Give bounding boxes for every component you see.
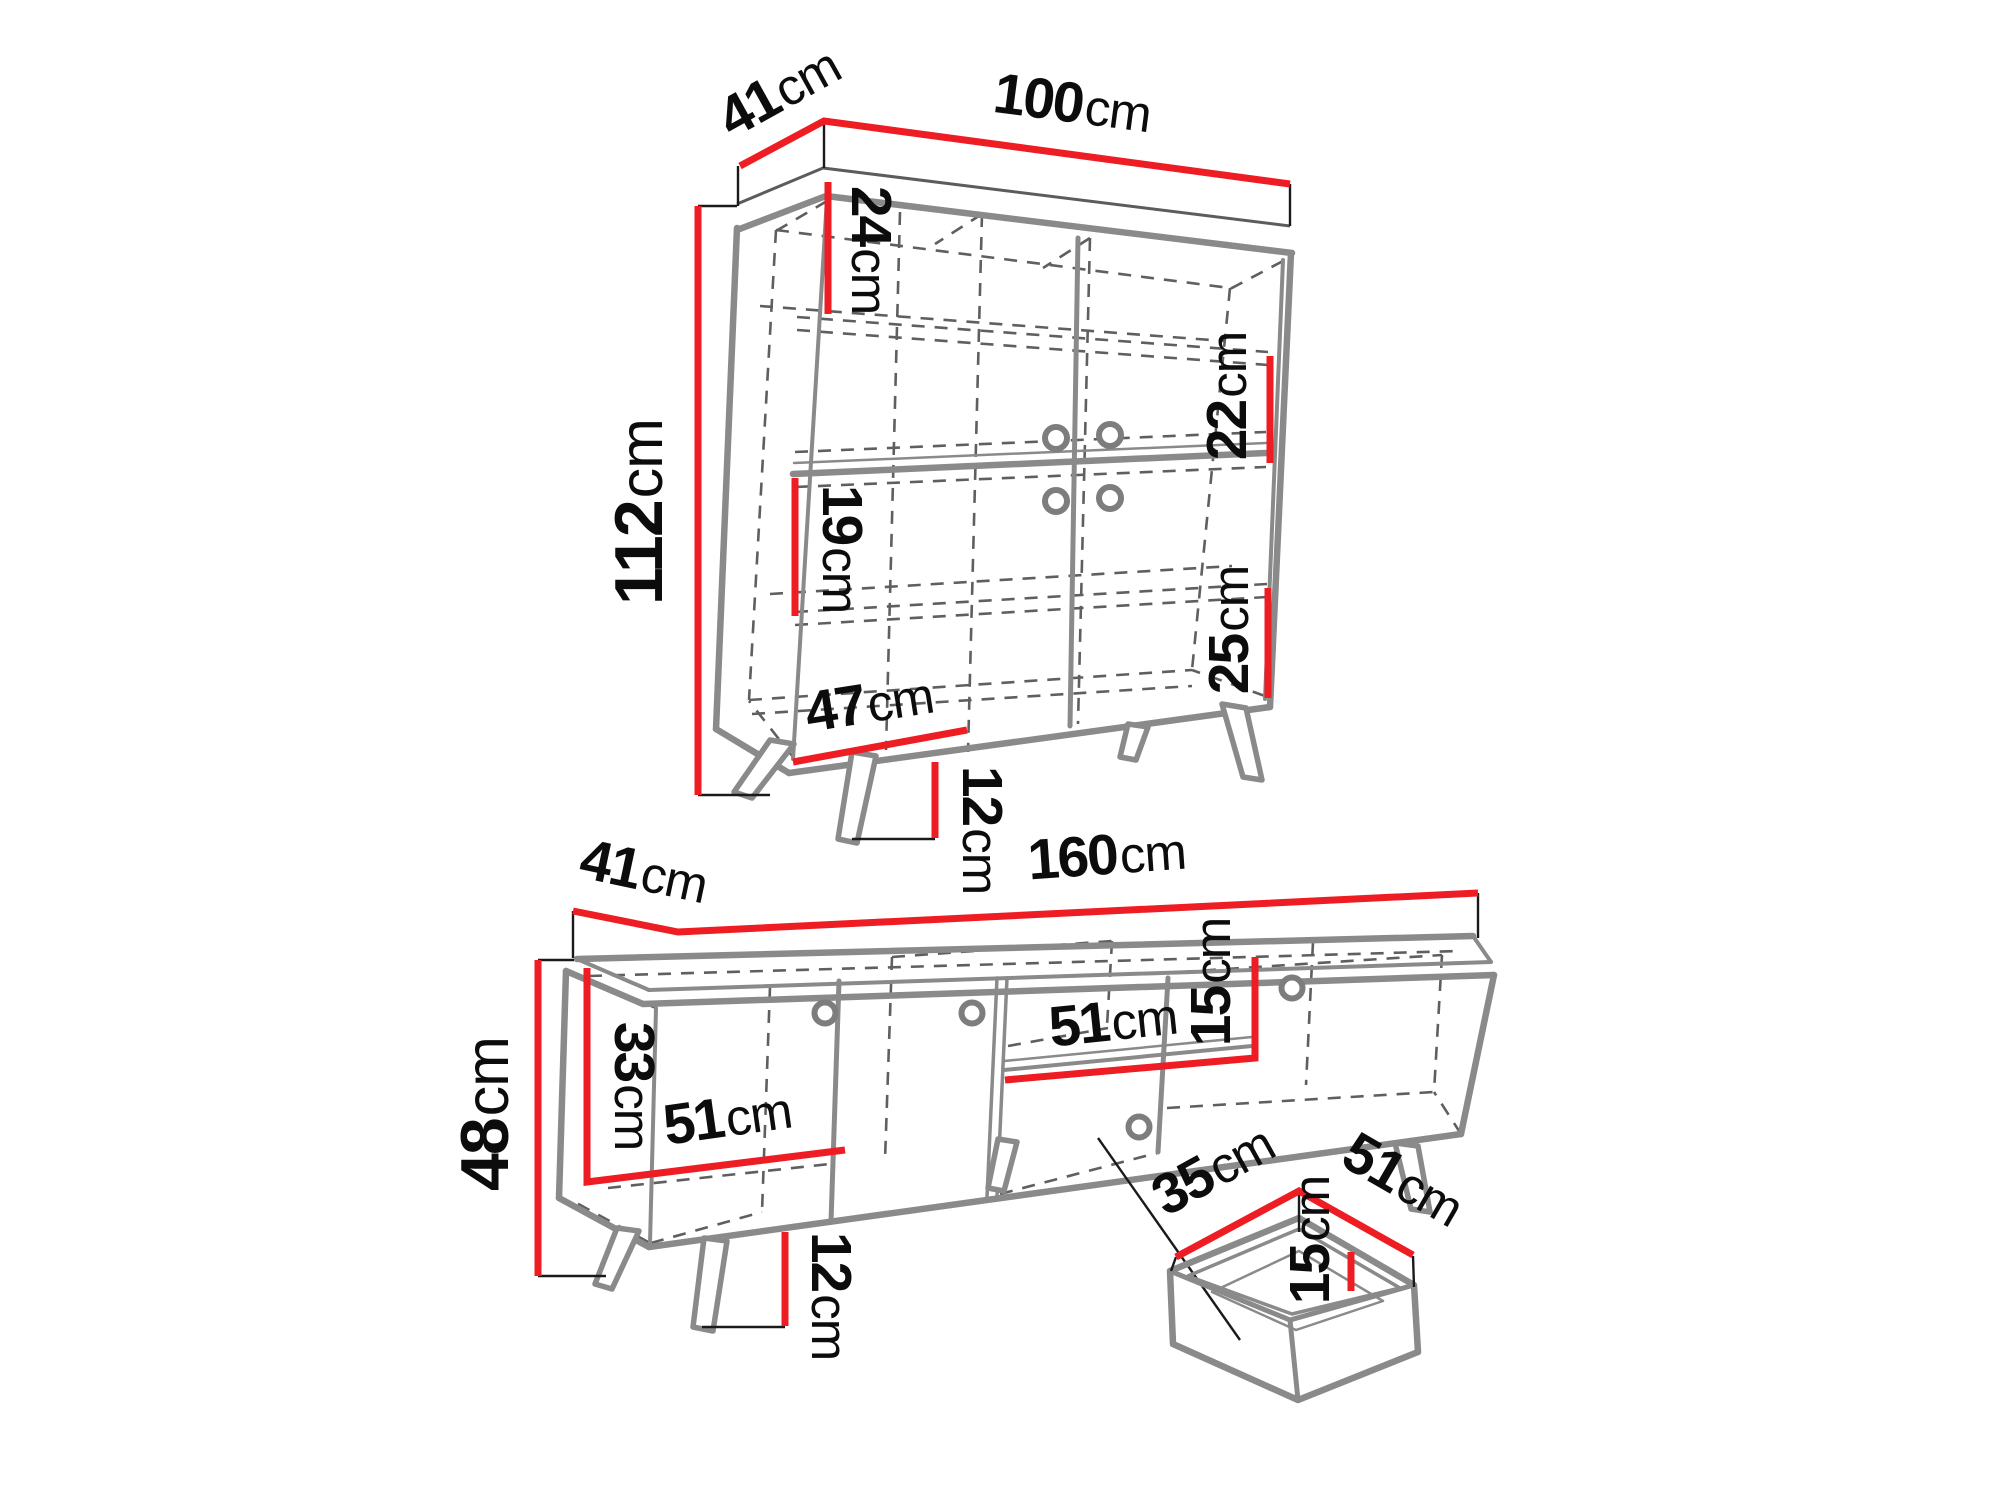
tv-stand-drawer-handle-icon bbox=[1129, 1117, 1150, 1138]
cabinet-upper-right-label: 22cm bbox=[1195, 332, 1259, 460]
cabinet-depth-width-dim-line bbox=[740, 121, 1290, 184]
tv-stand-height-label: 48cm bbox=[447, 1037, 523, 1191]
tv-stand-depth-label: 41cm bbox=[575, 827, 714, 916]
cabinet-inner-width-label: 47cm bbox=[801, 662, 938, 745]
cabinet-leg-front-right bbox=[1222, 704, 1262, 780]
diagram-canvas: 41cm 100cm 112cm 24cm 19cm 22cm 25cm 47c… bbox=[0, 0, 2000, 1499]
cabinet-width-label: 100cm bbox=[990, 61, 1155, 145]
cabinet-leg-height-label: 12cm bbox=[950, 766, 1014, 894]
furniture-dimension-diagram: 41cm 100cm 112cm 24cm 19cm 22cm 25cm 47c… bbox=[0, 0, 2000, 1499]
tv-stand-inner-height-label: 33cm bbox=[602, 1022, 666, 1150]
tv-stand-depth-width-dim-line bbox=[573, 893, 1478, 932]
cabinet-dim-lines bbox=[698, 121, 1290, 838]
cabinet-handle-icon bbox=[1045, 427, 1067, 449]
cabinet-lower-right-label: 25cm bbox=[1197, 566, 1261, 694]
tv-stand-left-inner-width-label: 51cm bbox=[659, 1077, 795, 1158]
cabinet: 41cm 100cm 112cm 24cm 19cm 22cm 25cm 47c… bbox=[601, 32, 1292, 894]
cabinet-handle-icon bbox=[1045, 490, 1067, 512]
cabinet-middle-left-label: 19cm bbox=[810, 485, 874, 613]
tv-stand-shelf-opening-label: 15cm bbox=[1179, 918, 1243, 1046]
cabinet-height-label: 112cm bbox=[601, 419, 677, 605]
tv-stand-leg-back bbox=[988, 1139, 1017, 1191]
tv-stand-width-label: 160cm bbox=[1026, 818, 1188, 893]
cabinet-depth-label: 41cm bbox=[707, 32, 850, 150]
tv-stand-leg-front-left bbox=[595, 1228, 639, 1289]
tv-stand-dim-labels: 41cm 160cm 48cm 33cm 51cm 51cm 15cm 12cm bbox=[447, 818, 1243, 1361]
tv-stand-handle-icon bbox=[815, 1003, 836, 1024]
cabinet-leg-back-right bbox=[1120, 724, 1148, 760]
cabinet-top-section-label: 24cm bbox=[839, 186, 903, 314]
tv-stand-handle-icon bbox=[1282, 978, 1303, 999]
tv-stand-handle-icon bbox=[962, 1003, 983, 1024]
cabinet-handle-icon bbox=[1099, 424, 1121, 446]
cabinet-extension-lines bbox=[698, 121, 1290, 839]
tv-stand-shelf-width-label: 51cm bbox=[1046, 983, 1180, 1060]
cabinet-handle-icon bbox=[1099, 487, 1121, 509]
tv-stand-leg-height-label: 12cm bbox=[799, 1232, 863, 1360]
drawer-inner-height-label: 15cm bbox=[1278, 1176, 1342, 1304]
tv-stand-leg-mid-left bbox=[693, 1238, 727, 1331]
